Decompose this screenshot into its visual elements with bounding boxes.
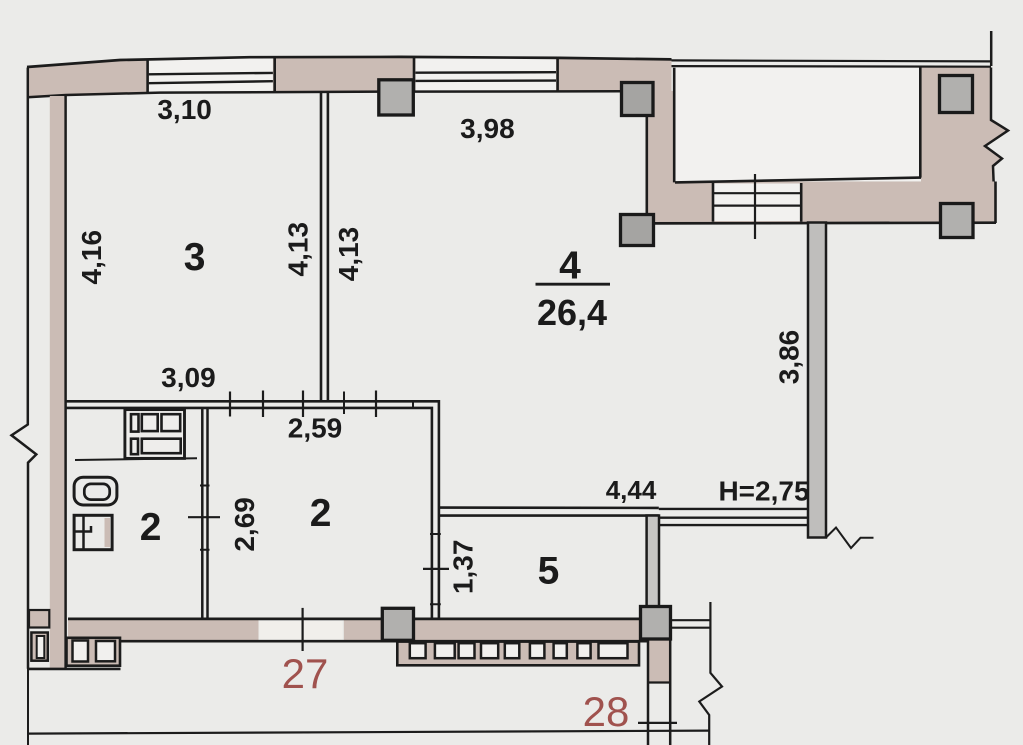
svg-text:2,59: 2,59 <box>288 413 343 444</box>
svg-text:4,16: 4,16 <box>76 230 107 285</box>
svg-text:26,4: 26,4 <box>537 292 607 333</box>
svg-text:4,44: 4,44 <box>606 475 657 505</box>
svg-text:3,09: 3,09 <box>161 362 216 393</box>
svg-text:4,13: 4,13 <box>333 227 364 282</box>
svg-text:27: 27 <box>282 650 329 697</box>
svg-text:2: 2 <box>310 492 332 535</box>
svg-text:3,98: 3,98 <box>460 113 515 144</box>
svg-text:5: 5 <box>538 550 560 593</box>
svg-text:3,10: 3,10 <box>157 94 212 125</box>
svg-text:2,69: 2,69 <box>229 497 260 552</box>
svg-text:3,86: 3,86 <box>774 330 805 385</box>
svg-text:28: 28 <box>583 688 630 735</box>
svg-text:4,13: 4,13 <box>282 222 313 277</box>
svg-text:H=2,75: H=2,75 <box>718 476 809 507</box>
svg-text:4: 4 <box>559 245 581 288</box>
svg-text:1,37: 1,37 <box>448 540 479 595</box>
svg-text:3: 3 <box>184 236 206 279</box>
svg-text:2: 2 <box>140 506 162 549</box>
